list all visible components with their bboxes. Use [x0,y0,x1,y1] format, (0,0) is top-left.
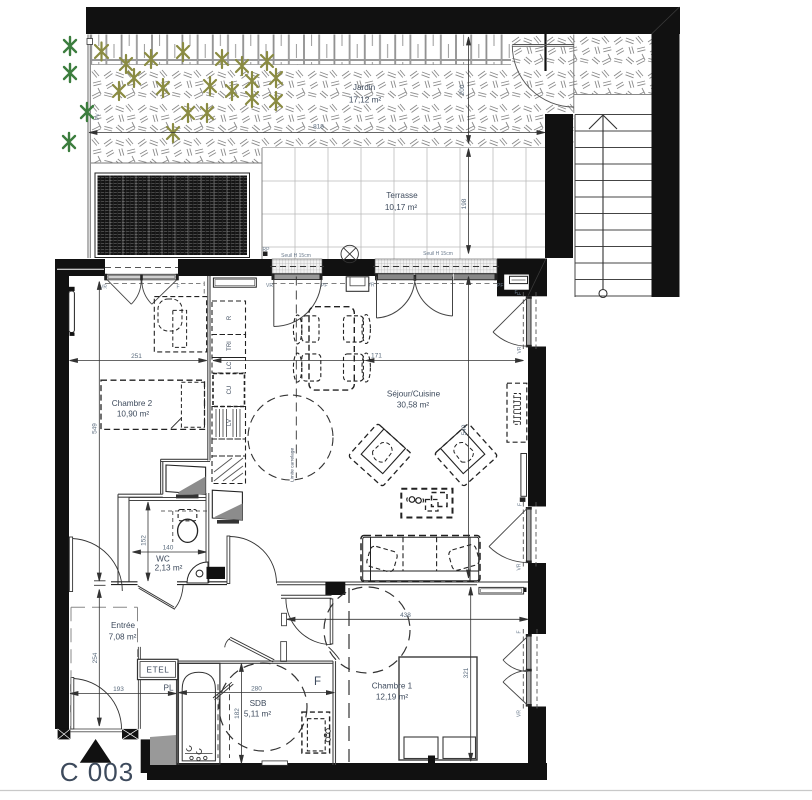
svg-text:PF: PF [497,283,503,289]
svg-text:Terrasse: Terrasse [386,191,418,200]
svg-text:VR: VR [266,283,273,289]
svg-text:CU: CU [227,386,233,395]
svg-text:F: F [177,285,180,291]
svg-text:VR: VR [517,346,523,353]
svg-text:140: 140 [163,545,174,552]
svg-text:10,90 m²: 10,90 m² [117,410,150,419]
svg-text:TRI: TRI [227,341,233,351]
svg-text:Seuil H 15cm: Seuil H 15cm [423,251,453,257]
svg-text:F: F [517,292,523,295]
svg-text:549: 549 [92,423,99,434]
svg-text:280: 280 [251,686,262,693]
svg-text:7,08 m²: 7,08 m² [109,633,137,642]
svg-text:C 003: C 003 [60,757,134,787]
svg-text:17,12 m²: 17,12 m² [349,96,382,105]
svg-text:2,13 m²: 2,13 m² [155,564,183,573]
svg-text:F: F [314,676,321,688]
svg-text:PV: PV [95,113,101,120]
svg-text:193: 193 [113,686,124,693]
svg-text:Jardin: Jardin [353,83,376,92]
svg-text:12,19 m²: 12,19 m² [376,693,409,702]
svg-text:182: 182 [234,708,241,719]
svg-text:F: F [517,630,523,633]
svg-text:ETEL: ETEL [147,666,170,675]
svg-text:Entrée: Entrée [111,621,136,630]
svg-text:171: 171 [371,353,382,360]
svg-text:200: 200 [459,84,466,95]
svg-text:30,58 m²: 30,58 m² [397,401,430,410]
svg-text:321: 321 [463,667,470,678]
svg-text:Chambre 2: Chambre 2 [112,399,153,408]
svg-text:152: 152 [141,535,148,546]
svg-text:PL: PL [163,684,173,693]
svg-text:10,17 m²: 10,17 m² [385,203,418,212]
svg-text:VR: VR [517,710,523,717]
svg-text:PF: PF [321,283,327,289]
svg-text:198: 198 [461,198,468,209]
svg-text:818: 818 [313,124,324,131]
svg-text:WC: WC [156,555,170,564]
svg-text:VR: VR [517,563,523,570]
svg-text:5,11 m²: 5,11 m² [244,710,271,719]
svg-text:Seuil H 15cm: Seuil H 15cm [281,253,311,259]
svg-text:LV: LV [227,419,233,426]
svg-text:251: 251 [131,353,142,360]
svg-text:Chambre 1: Chambre 1 [372,682,413,691]
svg-text:540: 540 [461,424,468,435]
svg-text:Séjour/Cuisine: Séjour/Cuisine [387,390,441,399]
svg-text:F: F [518,503,524,506]
svg-text:438: 438 [400,612,411,619]
svg-text:SDB: SDB [250,699,267,708]
svg-text:Limite carrelage: Limite carrelage [290,448,296,482]
svg-text:LC: LC [227,361,233,369]
svg-text:R: R [227,315,233,320]
svg-text:254: 254 [92,652,99,663]
